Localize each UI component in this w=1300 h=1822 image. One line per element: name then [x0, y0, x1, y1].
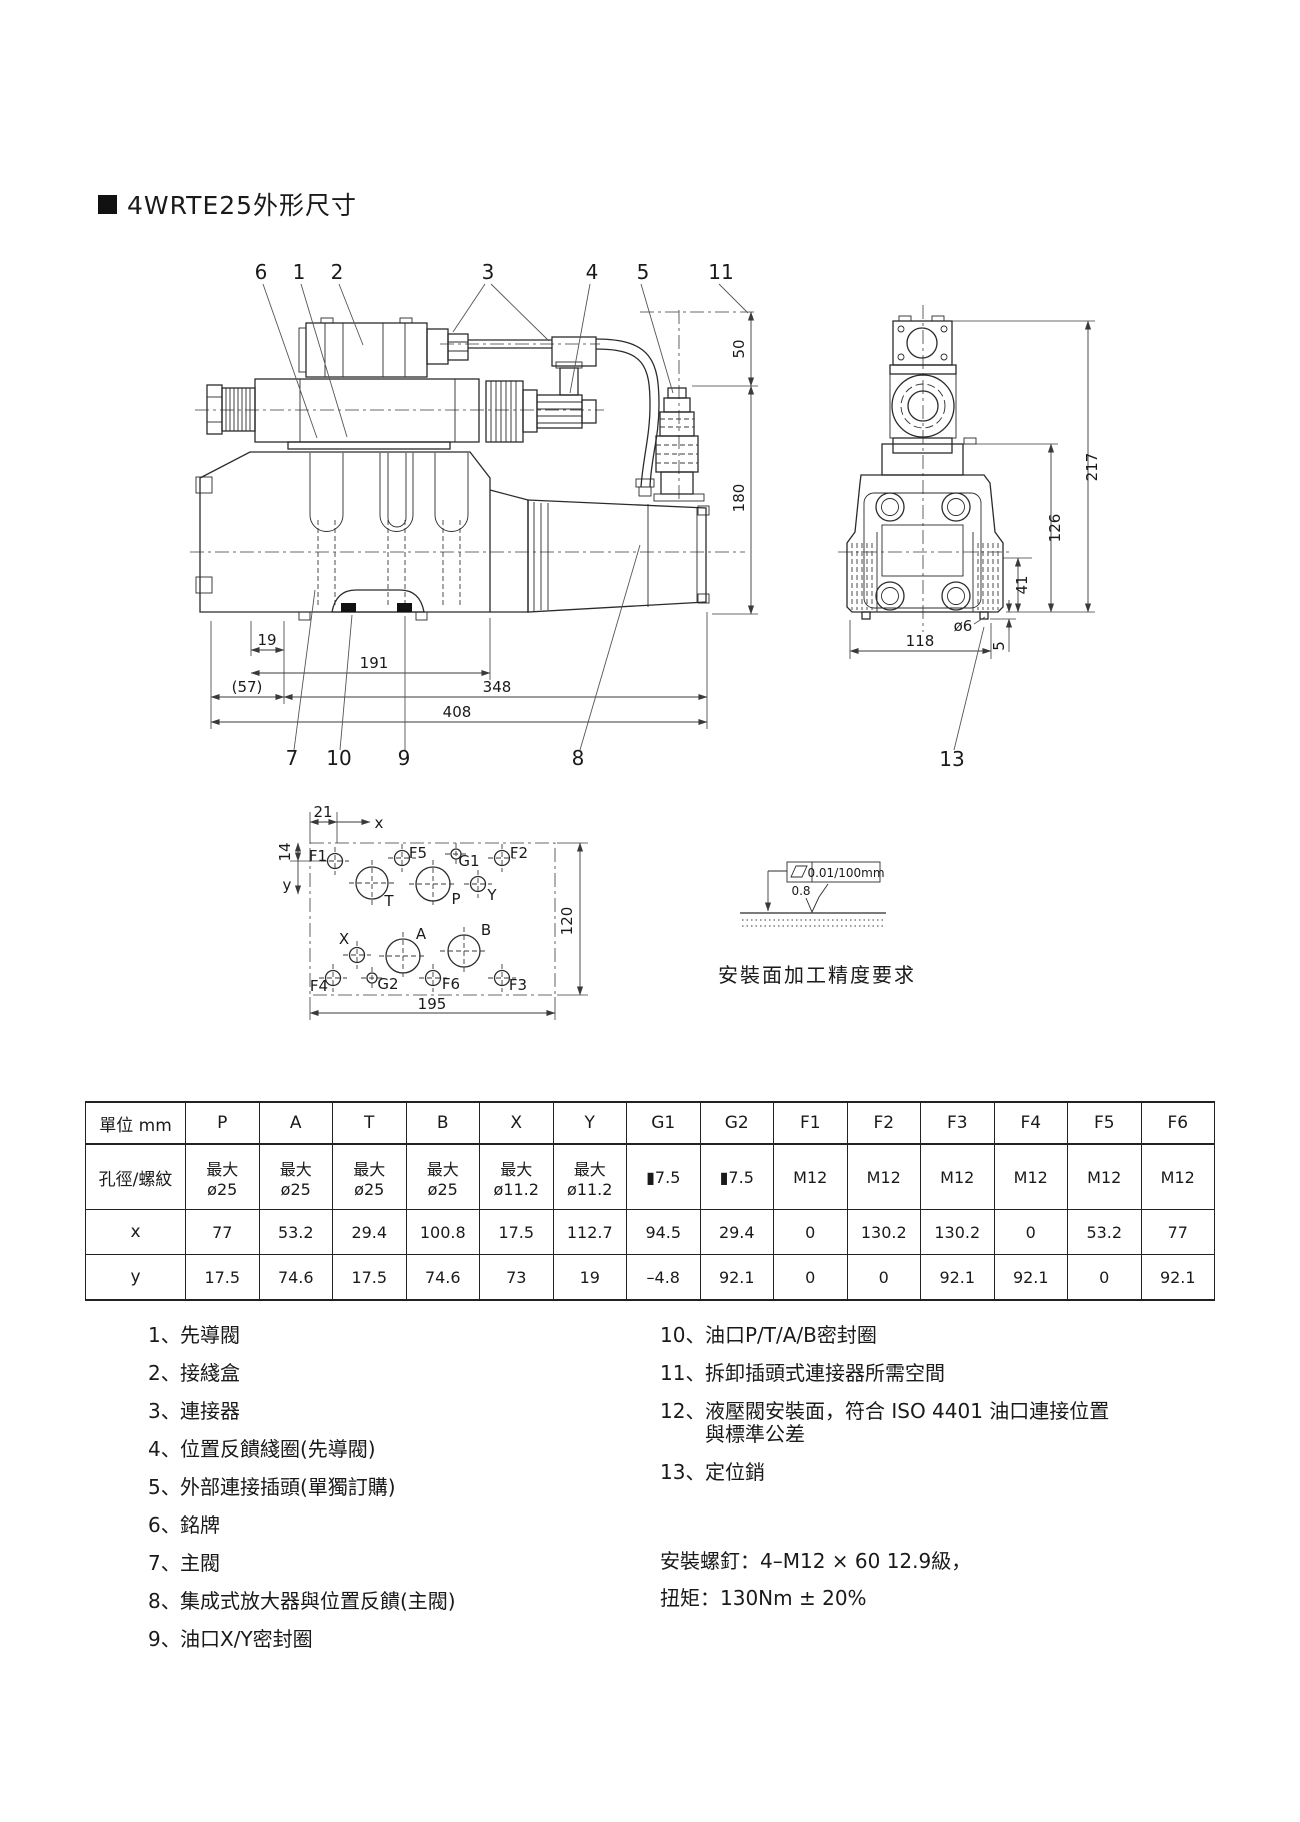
table-cell: 最大 ø25: [406, 1144, 480, 1210]
mounting-screw-note: 安裝螺釘：4–M12 × 60 12.9級， 扭矩：130Nm ± 20%: [660, 1543, 971, 1617]
legend-item-text: 拆卸插頭式連接器所需空間: [705, 1362, 945, 1385]
table-cell: 0: [1068, 1255, 1142, 1301]
callout-3: 3: [482, 260, 495, 284]
legend-item-number: 5、: [148, 1476, 180, 1499]
table-cell: 73: [480, 1255, 554, 1301]
table-cell: 29.4: [700, 1210, 774, 1255]
table-cell: 最大 ø25: [186, 1144, 260, 1210]
table-cell: 77: [186, 1210, 260, 1255]
dim-19: 19: [257, 631, 276, 649]
dim-191: 191: [360, 654, 389, 672]
table-header-A: A: [259, 1102, 333, 1144]
dim-57: (57): [232, 678, 263, 696]
table-header-Y: Y: [553, 1102, 627, 1144]
table-cell: M12: [1141, 1144, 1215, 1210]
callout-10: 10: [326, 746, 351, 770]
legend-item-number: 13、: [660, 1461, 705, 1484]
main-view-dimensions: [211, 312, 758, 729]
legend-item-12: 12、 液壓閥安裝面，符合 ISO 4401 油口連接位置 與標準公差: [660, 1400, 1160, 1446]
table-header-G2: G2: [700, 1102, 774, 1144]
legend-item-text: 接綫盒: [180, 1362, 240, 1385]
table-cell: 112.7: [553, 1210, 627, 1255]
flatness-value: 0.01/100mm: [807, 866, 884, 880]
dim-14: 14: [276, 842, 294, 861]
legend-item-text: 集成式放大器與位置反饋(主閥): [180, 1590, 456, 1613]
legend-item-6: 6、 銘牌: [148, 1514, 578, 1537]
table-cell: 0: [774, 1210, 848, 1255]
table-cell: 最大 ø11.2: [553, 1144, 627, 1210]
table-cell: M12: [847, 1144, 921, 1210]
table-header-G1: G1: [627, 1102, 701, 1144]
dim-408: 408: [443, 703, 472, 721]
dimension-table: 單位 mm P A T B X Y G1 G2 F1 F2 F3 F4 F5 F…: [85, 1101, 1215, 1301]
table-header-F6: F6: [1141, 1102, 1215, 1144]
port-A: A: [416, 925, 427, 943]
table-header-unit: 單位 mm: [86, 1102, 186, 1144]
mounting-face-geometry: [290, 812, 588, 1020]
dim-180: 180: [730, 484, 748, 513]
legend-item-text: 銘牌: [180, 1514, 220, 1537]
port-F4: F4: [310, 977, 328, 995]
table-cell: 19: [553, 1255, 627, 1301]
dim-126: 126: [1046, 514, 1064, 543]
table-cell: –4.8: [627, 1255, 701, 1301]
table-y-row: y 17.5 74.6 17.5 74.6 73 19 –4.8 92.1 0 …: [86, 1255, 1215, 1301]
table-header-X: X: [480, 1102, 554, 1144]
table-spec-label: 孔徑/螺紋: [86, 1144, 186, 1210]
dim-41: 41: [1013, 575, 1031, 594]
callout-2: 2: [331, 260, 344, 284]
dim-50: 50: [730, 339, 748, 358]
legend-list-right: 10、 油口P/T/A/B密封圈 11、 拆卸插頭式連接器所需空間 12、 液壓…: [660, 1324, 1160, 1499]
legend-item-11: 11、 拆卸插頭式連接器所需空間: [660, 1362, 1160, 1385]
legend-item-1: 1、 先導閥: [148, 1324, 578, 1347]
dimension-labels: 19 191 (57) 348 408 50 180 217 126 41 5 …: [232, 339, 1101, 721]
table-header-F2: F2: [847, 1102, 921, 1144]
legend-item-text: 先導閥: [180, 1324, 240, 1347]
table-cell: 74.6: [259, 1255, 333, 1301]
port-F3: F3: [509, 976, 527, 994]
table-cell: 53.2: [259, 1210, 333, 1255]
legend-item-number: 2、: [148, 1362, 180, 1385]
port-F5: F5: [409, 844, 427, 862]
port-Y: Y: [486, 886, 497, 904]
dim-dia6: ø6: [954, 617, 973, 635]
legend-item-text: 油口P/T/A/B密封圈: [705, 1324, 877, 1347]
table-spec-row: 孔徑/螺紋 最大 ø25 最大 ø25 最大 ø25 最大 ø25 最大 ø11…: [86, 1144, 1215, 1210]
table-header-T: T: [333, 1102, 407, 1144]
legend-item-number: 10、: [660, 1324, 705, 1347]
legend-item-number: 6、: [148, 1514, 180, 1537]
legend-item-text: 連接器: [180, 1400, 240, 1423]
callout-6: 6: [255, 260, 268, 284]
table-cell: M12: [921, 1144, 995, 1210]
table-cell: M12: [774, 1144, 848, 1210]
port-G1: G1: [458, 852, 479, 870]
table-cell: ▮7.5: [627, 1144, 701, 1210]
legend-item-number: 3、: [148, 1400, 180, 1423]
table-cell: 130.2: [847, 1210, 921, 1255]
legend-item-9: 9、 油口X/Y密封圈: [148, 1628, 578, 1651]
legend-item-number: 7、: [148, 1552, 180, 1575]
legend-item-3: 3、 連接器: [148, 1400, 578, 1423]
table-header-B: B: [406, 1102, 480, 1144]
dim-120: 120: [558, 907, 576, 936]
mounting-screw-line: 安裝螺釘：4–M12 × 60 12.9級，: [660, 1543, 971, 1580]
legend-item-text: 外部連接插頭(單獨訂購): [180, 1476, 396, 1499]
callout-8: 8: [572, 746, 585, 770]
legend-item-number: 9、: [148, 1628, 180, 1651]
table-cell: M12: [994, 1144, 1068, 1210]
table-cell: 最大 ø11.2: [480, 1144, 554, 1210]
dim-118: 118: [906, 632, 935, 650]
legend-item-8: 8、 集成式放大器與位置反饋(主閥): [148, 1590, 578, 1613]
axis-y-label: y: [283, 876, 292, 894]
port-G2: G2: [377, 975, 398, 993]
table-cell: 17.5: [480, 1210, 554, 1255]
axis-x-label: x: [375, 814, 384, 832]
port-X: X: [339, 930, 349, 948]
port-T: T: [383, 892, 394, 910]
callout-leaders: [263, 284, 984, 750]
callout-11: 11: [708, 260, 733, 284]
table-cell: 17.5: [333, 1255, 407, 1301]
legend-item-4: 4、 位置反饋綫圈(先導閥): [148, 1438, 578, 1461]
surface-finish-symbol: 0.01/100mm 0.8 安裝面加工精度要求: [718, 862, 916, 987]
port-F2: F2: [510, 844, 528, 862]
table-cell: ▮7.5: [700, 1144, 774, 1210]
table-header-F4: F4: [994, 1102, 1068, 1144]
surface-finish-caption: 安裝面加工精度要求: [718, 963, 916, 987]
table-cell: 0: [774, 1255, 848, 1301]
table-cell: 53.2: [1068, 1210, 1142, 1255]
legend-item-text: 定位銷: [705, 1461, 765, 1484]
legend-item-5: 5、 外部連接插頭(單獨訂購): [148, 1476, 578, 1499]
callout-1: 1: [293, 260, 306, 284]
port-B: B: [481, 921, 491, 939]
callout-numbers: 6 1 2 3 4 5 11 7 10 9 8 13: [255, 260, 965, 771]
callout-7: 7: [286, 746, 299, 770]
legend-item-number: 1、: [148, 1324, 180, 1347]
legend-item-text: 位置反饋綫圈(先導閥): [180, 1438, 376, 1461]
dim-348: 348: [483, 678, 512, 696]
table-header-F1: F1: [774, 1102, 848, 1144]
table-header-F3: F3: [921, 1102, 995, 1144]
table-cell: 17.5: [186, 1255, 260, 1301]
legend-item-2: 2、 接綫盒: [148, 1362, 578, 1385]
callout-5: 5: [637, 260, 650, 284]
table-x-label: x: [86, 1210, 186, 1255]
legend-item-number: 12、: [660, 1400, 705, 1423]
table-cell: 92.1: [700, 1255, 774, 1301]
table-x-row: x 77 53.2 29.4 100.8 17.5 112.7 94.5 29.…: [86, 1210, 1215, 1255]
table-cell: 92.1: [921, 1255, 995, 1301]
table-cell: 130.2: [921, 1210, 995, 1255]
legend-item-text: 油口X/Y密封圈: [180, 1628, 313, 1651]
legend-item-text: 液壓閥安裝面，符合 ISO 4401 油口連接位置 與標準公差: [705, 1400, 1109, 1446]
right-view-geometry: [838, 305, 1012, 632]
table-cell: 100.8: [406, 1210, 480, 1255]
table-cell: 92.1: [1141, 1255, 1215, 1301]
dim-195: 195: [418, 995, 447, 1013]
table-cell: 77: [1141, 1210, 1215, 1255]
torque-line: 扭矩：130Nm ± 20%: [660, 1580, 971, 1617]
legend-item-number: 4、: [148, 1438, 180, 1461]
main-view-geometry: [190, 310, 758, 620]
legend-item-text: 主閥: [180, 1552, 220, 1575]
legend-item-number: 8、: [148, 1590, 180, 1613]
callout-13: 13: [939, 747, 964, 771]
table-y-label: y: [86, 1255, 186, 1301]
table-header-row: 單位 mm P A T B X Y G1 G2 F1 F2 F3 F4 F5 F…: [86, 1102, 1215, 1144]
dim-21: 21: [313, 803, 332, 821]
table-cell: 最大 ø25: [333, 1144, 407, 1210]
table-header-P: P: [186, 1102, 260, 1144]
legend-item-13: 13、 定位銷: [660, 1461, 1160, 1484]
legend-item-number: 11、: [660, 1362, 705, 1385]
legend-list-left: 1、 先導閥 2、 接綫盒 3、 連接器 4、 位置反饋綫圈(先導閥) 5、 外…: [148, 1324, 578, 1666]
table-header-F5: F5: [1068, 1102, 1142, 1144]
callout-4: 4: [586, 260, 599, 284]
table-cell: 29.4: [333, 1210, 407, 1255]
dim-217: 217: [1083, 453, 1101, 482]
table-cell: 94.5: [627, 1210, 701, 1255]
port-F1: F1: [309, 847, 327, 865]
table-cell: M12: [1068, 1144, 1142, 1210]
table-cell: 最大 ø25: [259, 1144, 333, 1210]
dim-5: 5: [990, 641, 1008, 651]
table-cell: 92.1: [994, 1255, 1068, 1301]
callout-9: 9: [398, 746, 411, 770]
port-P: P: [451, 890, 460, 908]
legend-item-7: 7、 主閥: [148, 1552, 578, 1575]
legend-item-10: 10、 油口P/T/A/B密封圈: [660, 1324, 1160, 1347]
table-cell: 0: [994, 1210, 1068, 1255]
roughness-value: 0.8: [791, 884, 810, 898]
table-cell: 74.6: [406, 1255, 480, 1301]
table-cell: 0: [847, 1255, 921, 1301]
port-F6: F6: [442, 975, 460, 993]
